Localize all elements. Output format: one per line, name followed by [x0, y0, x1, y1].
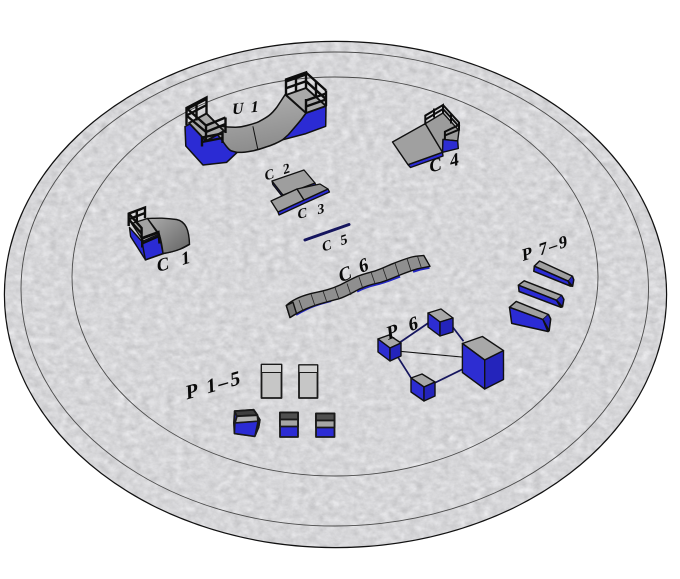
- svg-text:U 1: U 1: [231, 97, 261, 118]
